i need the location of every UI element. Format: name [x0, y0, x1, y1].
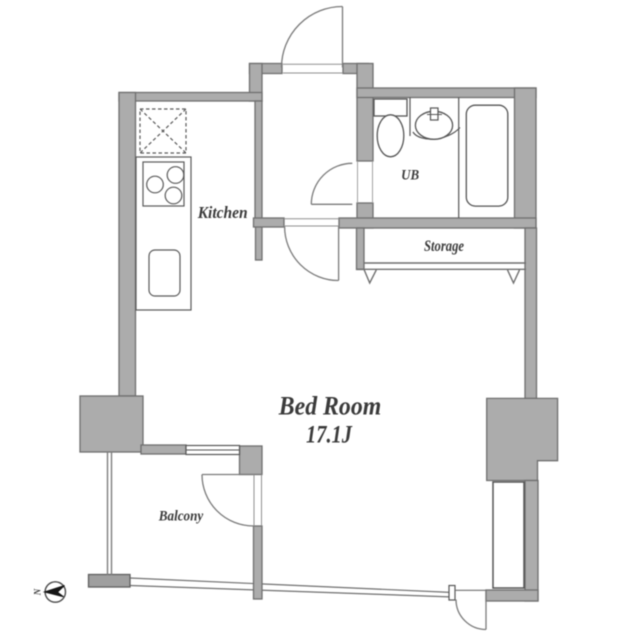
svg-text:17.1J: 17.1J [306, 422, 353, 449]
svg-text:Balcony: Balcony [158, 509, 204, 525]
svg-text:UB: UB [401, 168, 419, 184]
svg-text:Storage: Storage [424, 238, 464, 255]
svg-text:Bed Room: Bed Room [278, 391, 381, 420]
svg-text:N: N [33, 588, 43, 596]
svg-text:Kitchen: Kitchen [197, 203, 248, 222]
